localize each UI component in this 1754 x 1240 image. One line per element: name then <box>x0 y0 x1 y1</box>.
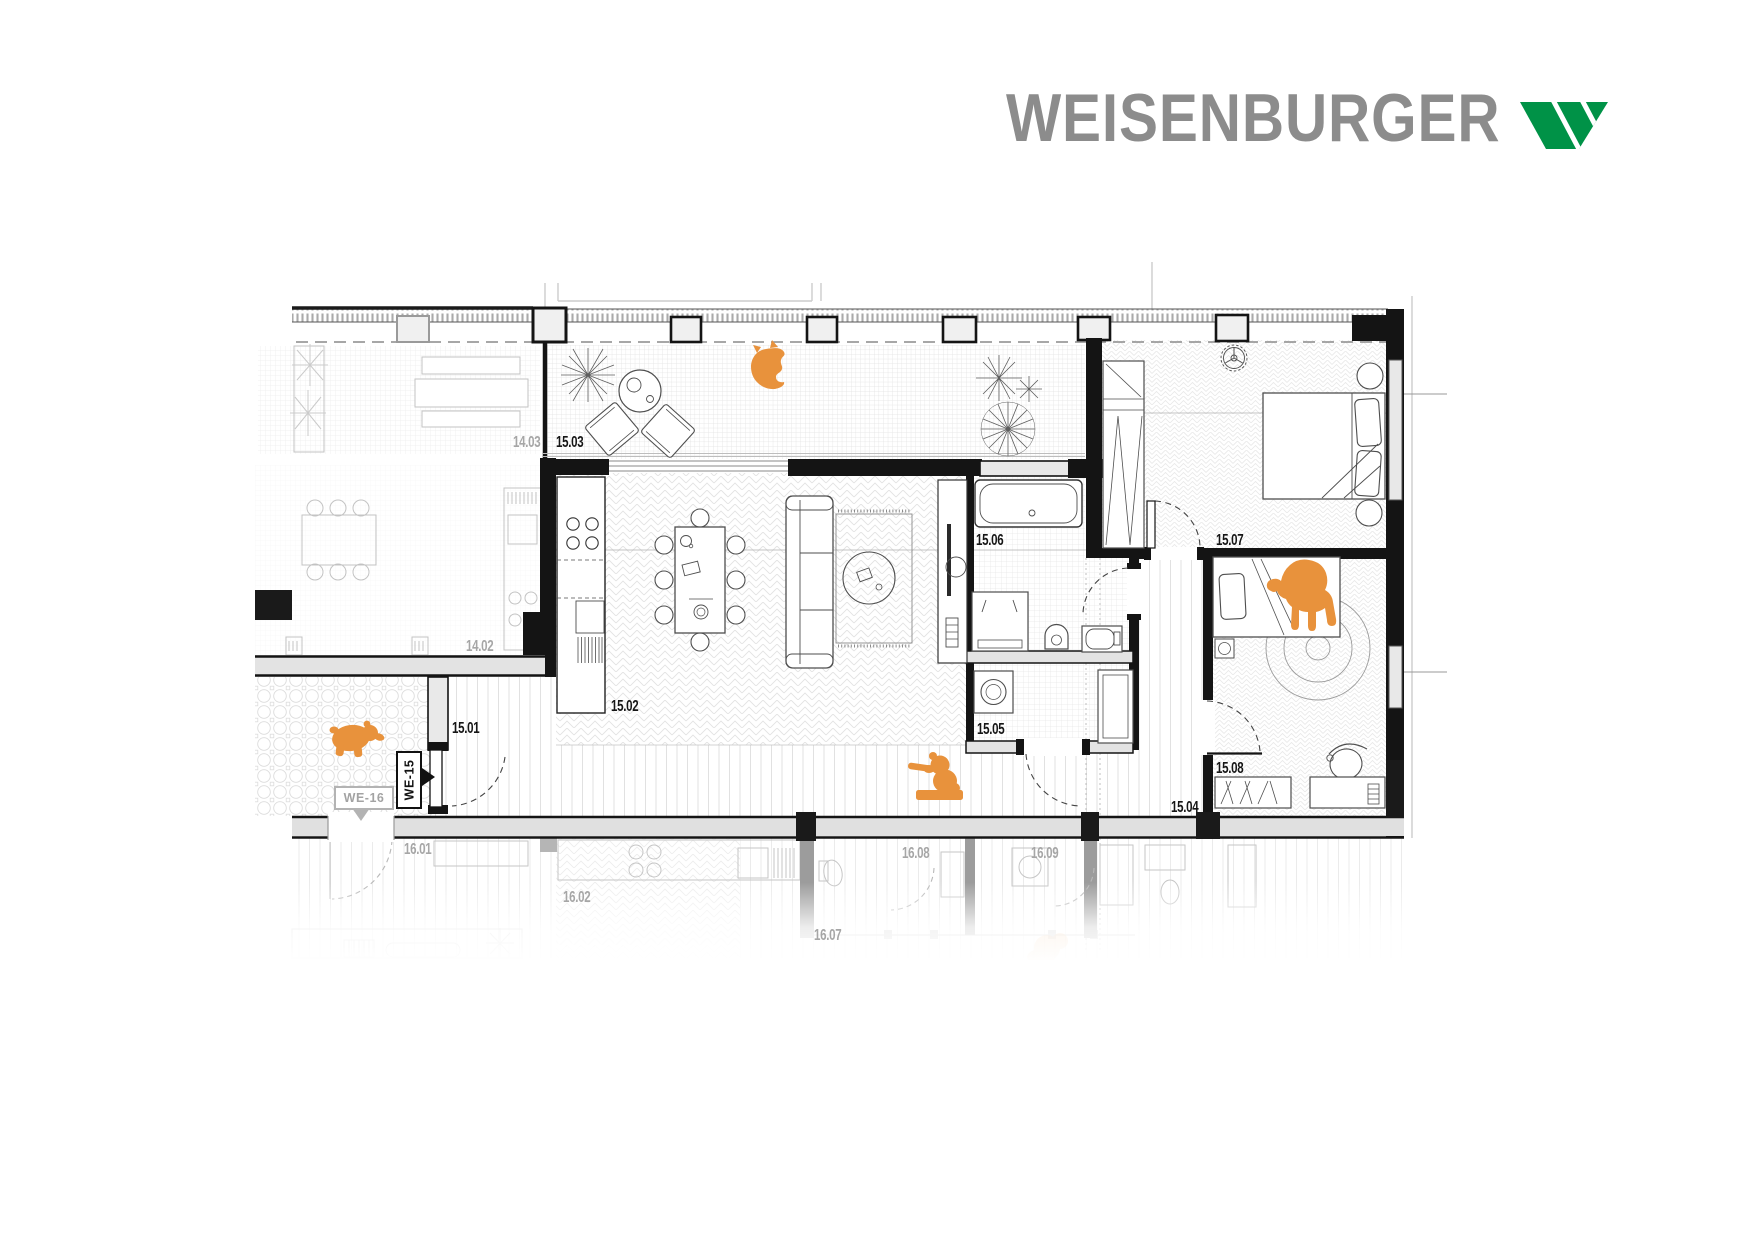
unit-tag-we-15-text: WE-15 <box>402 760 416 801</box>
washbasin <box>1082 626 1122 652</box>
room-label-15.07: 15.07 <box>1216 533 1243 549</box>
shower <box>972 592 1028 651</box>
wardrobe-15-07 <box>1103 361 1144 548</box>
room-label-15.03: 15.03 <box>556 435 583 451</box>
brand-logo: WEISENBURGER <box>1006 92 1581 148</box>
room-label-15.02: 15.02 <box>611 699 638 715</box>
washing-machine <box>974 671 1013 713</box>
unit-tag-we-15-arrow-icon <box>422 768 435 786</box>
unit-tag-we-16-text: WE-16 <box>344 791 385 805</box>
room-label-16.09: 16.09 <box>1031 846 1058 862</box>
desk <box>1310 777 1385 808</box>
kitchen-counter <box>557 477 605 713</box>
floor-plan-drawing <box>0 0 1754 1240</box>
room-label-15.01: 15.01 <box>452 721 479 737</box>
brand-wordmark: WEISENBURGER <box>1006 92 1500 145</box>
wardrobe-15-08 <box>1215 777 1291 808</box>
unit-tag-we-16-arrow-icon <box>352 808 370 821</box>
unit-tag-we-15: WE-15 <box>396 751 422 809</box>
room-label-15.06: 15.06 <box>976 533 1003 549</box>
unit-tag-we-16: WE-16 <box>334 786 394 810</box>
room-label-14.03: 14.03 <box>513 435 540 451</box>
bottom-fade <box>240 882 1470 964</box>
sofa <box>786 496 833 668</box>
terrace-table <box>619 370 661 412</box>
room-label-15.08: 15.08 <box>1216 761 1243 777</box>
room-label-15.04: 15.04 <box>1171 800 1198 816</box>
bottom-fade-solid <box>240 960 1470 1020</box>
room-label-16.07: 16.07 <box>814 928 841 944</box>
room-label-16.08: 16.08 <box>902 846 929 862</box>
room-label-16.01: 16.01 <box>404 842 431 858</box>
stool <box>1215 639 1234 658</box>
tv-board <box>938 480 967 663</box>
brand-w-icon <box>1520 102 1608 149</box>
toilet <box>1045 625 1068 650</box>
room-label-16.02: 16.02 <box>563 890 590 906</box>
bathtub <box>975 480 1082 527</box>
shower-15-05 <box>1098 670 1133 743</box>
room-label-15.05: 15.05 <box>977 722 1004 738</box>
room-label-14.02: 14.02 <box>466 639 493 655</box>
floor-plan-page: WEISENBURGER WE-15 WE-16 15.0115.0215.03… <box>0 0 1754 1240</box>
